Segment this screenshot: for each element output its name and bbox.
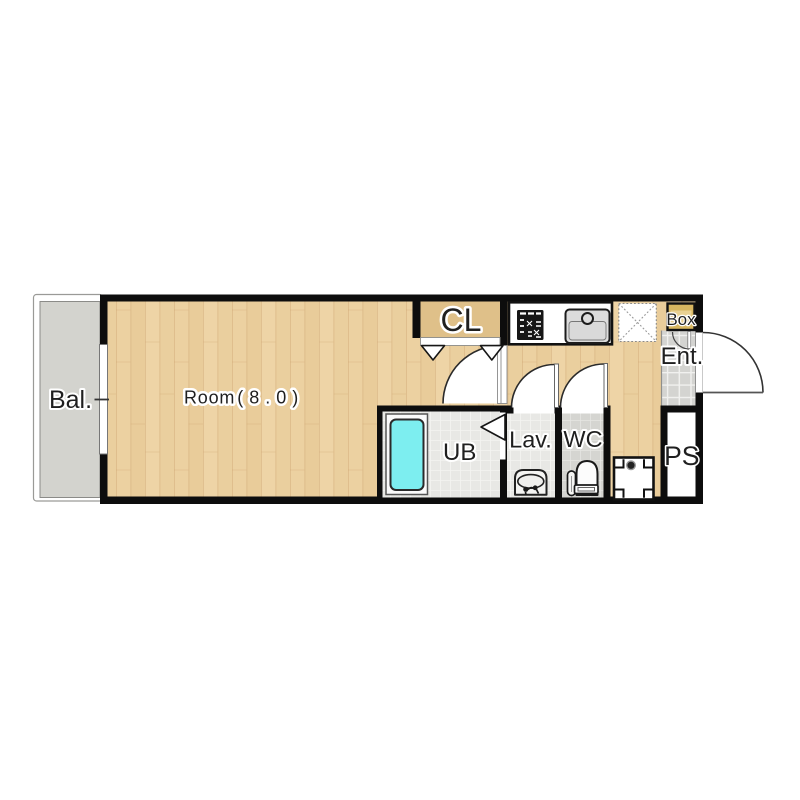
svg-text:CL: CL [441, 302, 482, 338]
svg-text:PS: PS [664, 441, 699, 471]
svg-text:Lav.: Lav. [509, 427, 552, 453]
svg-text:Bal.: Bal. [49, 386, 92, 414]
svg-text:Box: Box [666, 310, 696, 329]
svg-text:WC: WC [563, 426, 602, 452]
svg-text:Room(8.0): Room(8.0) [184, 388, 304, 408]
svg-text:UB: UB [443, 439, 476, 466]
svg-text:Ent.: Ent. [661, 343, 704, 370]
